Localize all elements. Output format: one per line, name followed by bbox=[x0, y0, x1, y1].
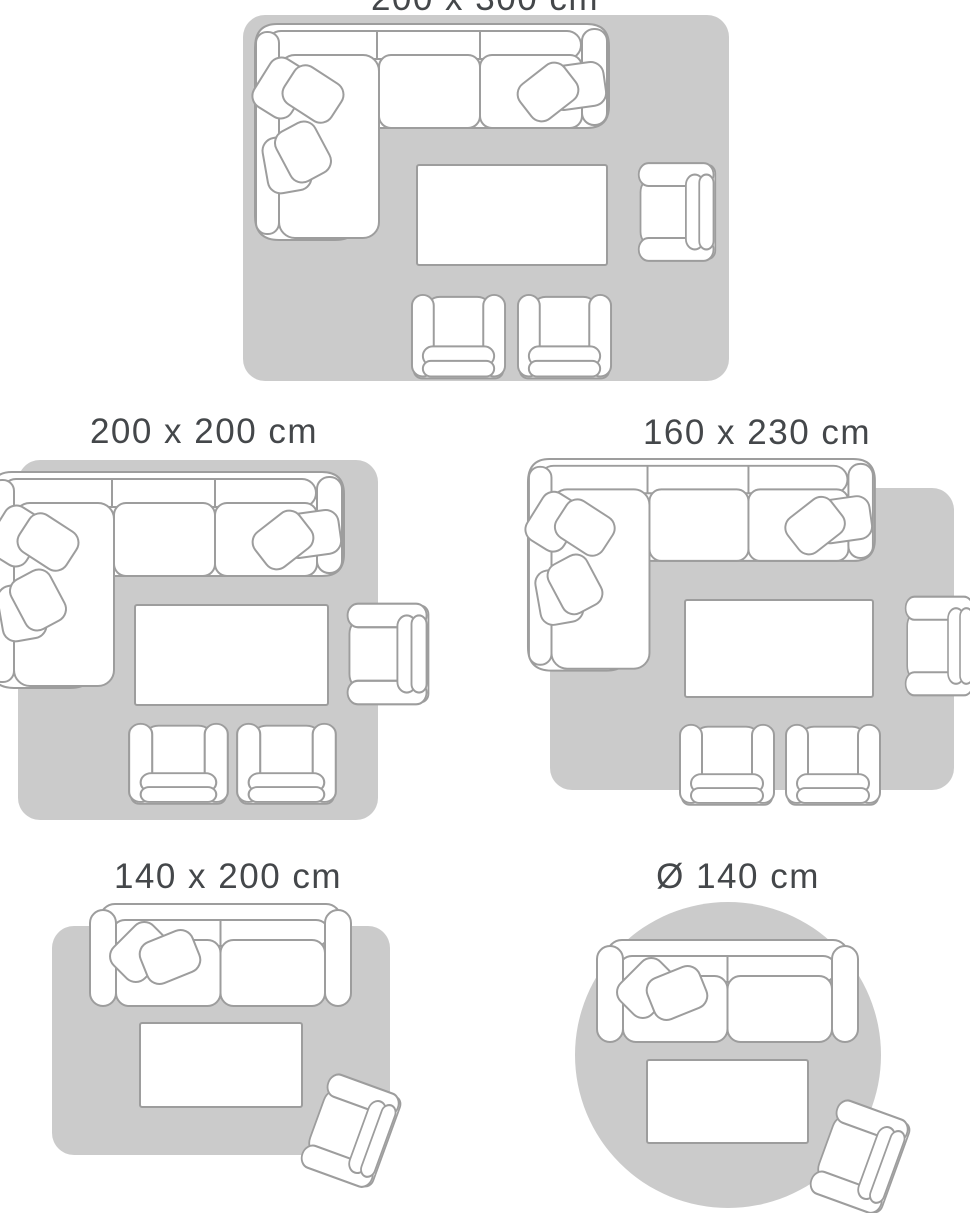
coffee-table bbox=[685, 600, 873, 697]
size-label-140x200: 140 x 200 cm bbox=[114, 857, 342, 896]
coffee-table bbox=[417, 165, 607, 265]
size-label-160x230: 160 x 230 cm bbox=[643, 413, 871, 452]
coffee-table bbox=[647, 1060, 808, 1143]
diagram-200x200: 200 x 200 cm bbox=[0, 412, 428, 820]
armchair bbox=[906, 597, 970, 696]
chair bbox=[129, 724, 228, 804]
diagram-160x230: 160 x 230 cm bbox=[521, 413, 970, 805]
two-seat-sofa bbox=[597, 940, 858, 1042]
coffee-table bbox=[140, 1023, 302, 1107]
two-seat-sofa bbox=[90, 904, 351, 1006]
armchair bbox=[348, 604, 429, 705]
coffee-table bbox=[135, 605, 328, 705]
chair bbox=[786, 725, 880, 805]
rug-size-guide: 200 x 300 cm 200 x 200 cm 160 x 230 cm 1… bbox=[0, 0, 970, 1213]
size-label-d140: Ø 140 cm bbox=[656, 857, 820, 896]
armchair bbox=[639, 163, 716, 261]
chair bbox=[237, 724, 336, 804]
chair bbox=[518, 295, 611, 378]
diagram-140x200: 140 x 200 cm bbox=[52, 857, 403, 1190]
chair bbox=[412, 295, 505, 378]
size-label-200x200: 200 x 200 cm bbox=[90, 412, 318, 451]
diagram-200x300: 200 x 300 cm bbox=[243, 0, 729, 381]
chair bbox=[680, 725, 774, 805]
diagram-d140: Ø 140 cm bbox=[575, 857, 912, 1213]
